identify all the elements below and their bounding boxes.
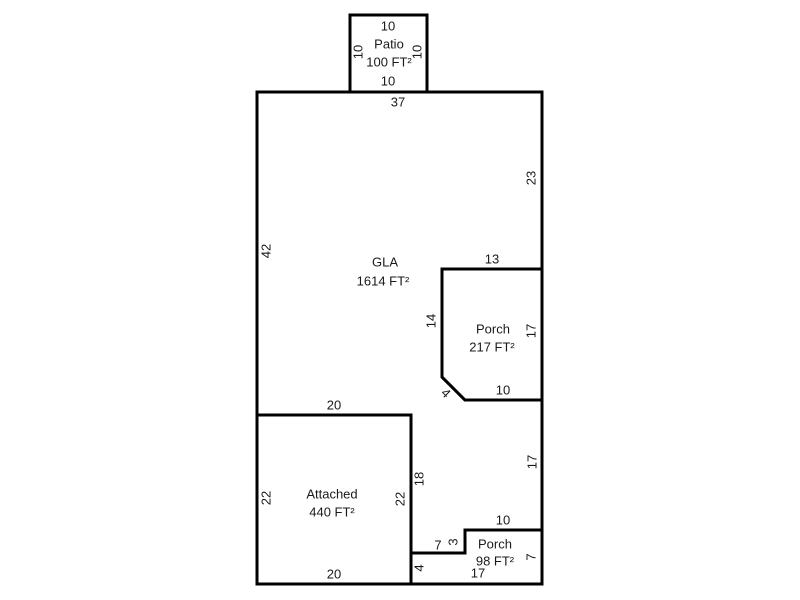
upper-porch-dim-bottom: 10 [496,383,510,398]
floorplan-canvas: 10Patio100 FT²101010374223GLA1614 FT²131… [0,0,800,600]
lower-porch-dim-left: 4 [412,564,427,571]
garage-area-label: 440 FT² [309,505,355,520]
lower-porch-name-label: Porch [478,537,512,552]
garage-dim-left: 22 [259,491,274,505]
gla-dim-top: 37 [391,95,405,110]
lower-porch-dim-right: 7 [524,553,539,560]
upper-porch-dim-right: 17 [524,324,539,338]
garage-dim-top: 20 [327,398,341,413]
garage-dim-right: 22 [393,492,408,506]
gla-dim-garage-side: 18 [412,472,427,486]
upper-porch-area-label: 217 FT² [469,340,515,355]
garage-name-label: Attached [306,487,357,502]
patio-dim-right: 10 [410,45,425,59]
gla-dim-left: 42 [259,244,274,258]
upper-porch-dim-top: 13 [485,252,499,267]
patio-name-label: Patio [374,37,404,52]
gla-dim-right: 23 [524,171,539,185]
gla-step-dim-v: 3 [446,538,461,545]
gla-strip-dim-right: 17 [525,455,540,469]
floorplan-sketch: 10Patio100 FT²101010374223GLA1614 FT²131… [0,0,800,600]
gla-step-dim-h: 7 [434,538,441,553]
patio-dim-left: 10 [351,45,366,59]
lower-porch-dim-top: 10 [496,513,510,528]
gla-area-label: 1614 FT² [357,274,410,289]
upper-porch-dim-left: 14 [424,314,439,328]
patio-area-label: 100 FT² [366,55,412,70]
upper-porch-name-label: Porch [476,322,510,337]
garage-dim-bottom: 20 [327,567,341,582]
lower-porch-dim-bottom: 17 [471,566,485,581]
patio-dim-bottom: 10 [381,74,395,89]
patio-dim-top: 10 [381,19,395,34]
gla-name-label: GLA [372,255,398,270]
